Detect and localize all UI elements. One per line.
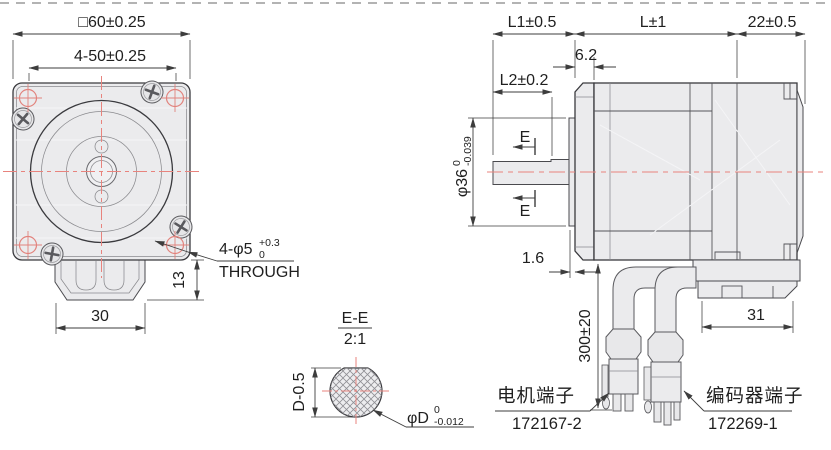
dim-l: L±1 xyxy=(640,14,667,31)
dim-shaft-dia-tol-upper: 0 xyxy=(434,404,440,416)
side-view: L1±0.5 L±1 22±0.5 6.2 L2±0.2 φ36 0 -0.03… xyxy=(451,14,824,433)
front-view: □60±0.25 4-50±0.25 13 30 4-φ5 +0.3 0 THR… xyxy=(3,14,300,334)
dim-6-2: 6.2 xyxy=(575,47,597,64)
dim-hole-pitch: 4-50±0.25 xyxy=(74,48,146,65)
section-view-ee: E-E 2:1 D-0.5 φD 0 -0.012 xyxy=(291,310,474,428)
dim-shaft-dia-tol-lower: -0.012 xyxy=(434,416,464,428)
dim-1-6: 1.6 xyxy=(522,250,544,267)
hole-note-tol-upper: +0.3 xyxy=(259,237,280,249)
dim-rear: 22±0.5 xyxy=(748,14,797,31)
drawing-canvas: □60±0.25 4-50±0.25 13 30 4-φ5 +0.3 0 THR… xyxy=(0,0,831,450)
dim-l1: L1±0.5 xyxy=(508,14,557,31)
dim-flat-height: D-0.5 xyxy=(291,372,308,411)
motor-dimension-drawing: □60±0.25 4-50±0.25 13 30 4-φ5 +0.3 0 THR… xyxy=(0,0,831,450)
encoder-terminal-part: 172269-1 xyxy=(708,415,778,433)
dim-square-flange: □60±0.25 xyxy=(78,14,145,31)
hole-note: 4-φ5 xyxy=(219,241,253,258)
hole-note-through: THROUGH xyxy=(219,264,300,281)
dim-cable-length: 300±20 xyxy=(577,309,594,362)
section-mark-e-bottom: E xyxy=(520,203,531,220)
motor-connector xyxy=(602,329,641,411)
section-mark-e-top: E xyxy=(520,129,531,146)
front-connector-tab xyxy=(55,260,145,300)
dim-tab-height: 13 xyxy=(171,271,188,289)
dim-tab-width: 30 xyxy=(91,308,109,325)
encoder-cable xyxy=(655,267,696,332)
rear-connector-block xyxy=(693,260,800,298)
encoder-connector xyxy=(644,332,683,425)
dim-pilot-tol-lower: -0.039 xyxy=(462,136,474,166)
encoder-terminal-label: 编码器端子 xyxy=(706,385,804,406)
dim-l2: L2±0.2 xyxy=(500,72,549,89)
motor-terminal-label: 电机端子 xyxy=(497,385,575,406)
hole-note-tol-lower: 0 xyxy=(259,249,265,261)
dim-shaft-dia: φD xyxy=(407,410,429,427)
dim-pilot-dia: φ36 xyxy=(454,169,471,197)
section-title: E-E xyxy=(342,310,369,327)
dim-31: 31 xyxy=(747,307,765,324)
motor-terminal-part: 172167-2 xyxy=(512,415,582,433)
section-scale: 2:1 xyxy=(344,331,366,348)
